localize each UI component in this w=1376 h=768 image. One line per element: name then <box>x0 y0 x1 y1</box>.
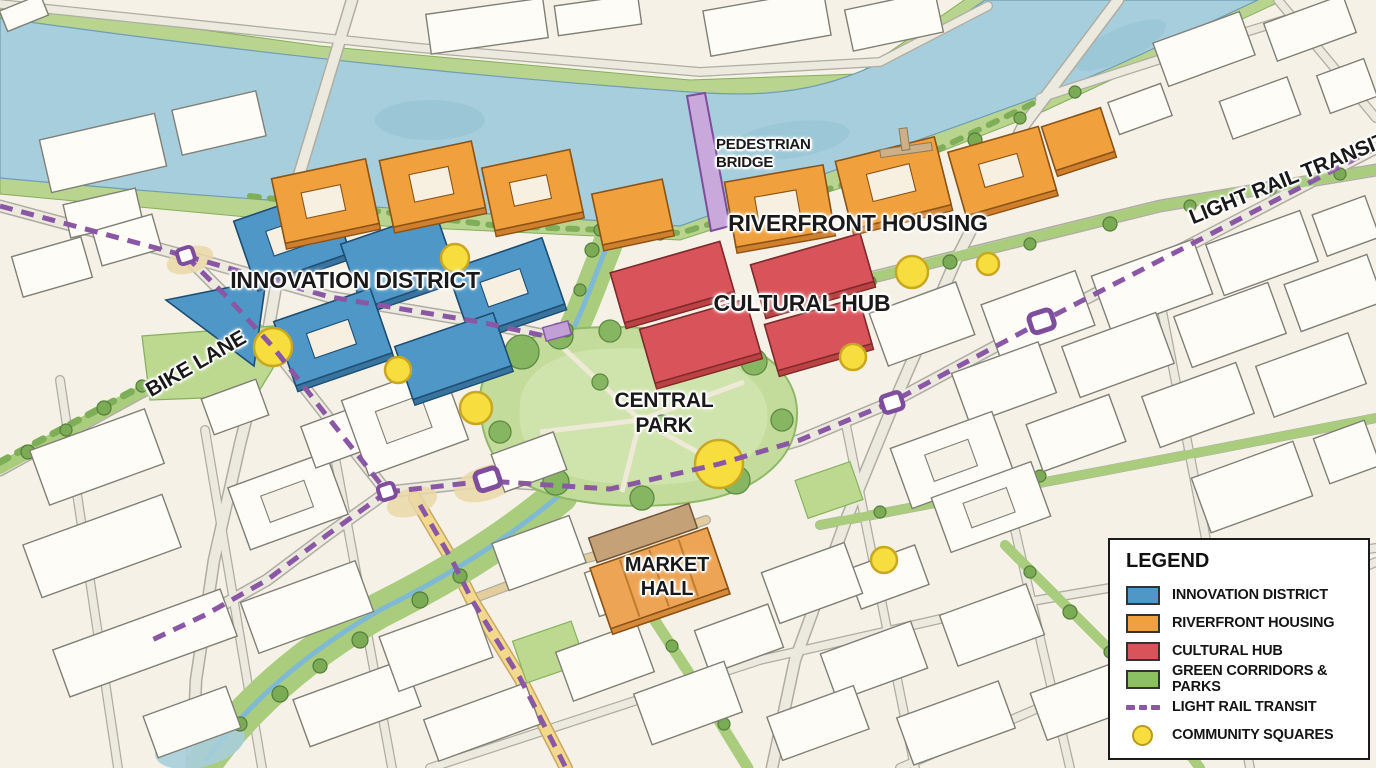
innovation-swatch-icon <box>1126 586 1160 605</box>
rail-station <box>377 482 397 501</box>
community-square <box>896 256 928 288</box>
legend: LEGEND INNOVATION DISTRICT RIVERFRONT HO… <box>1108 538 1370 760</box>
legend-item-riverfront: RIVERFRONT HOUSING <box>1126 609 1354 637</box>
community-square <box>871 547 897 573</box>
community-square <box>840 344 866 370</box>
community-square <box>385 357 411 383</box>
cultural-swatch-icon <box>1126 642 1160 661</box>
legend-item-innovation: INNOVATION DISTRICT <box>1126 581 1354 609</box>
rail-station <box>176 246 196 265</box>
legend-item-community-squares: COMMUNITY SQUARES <box>1126 721 1354 749</box>
masterplan-map: PEDESTRIAN BRIDGE RIVERFRONT HOUSING INN… <box>0 0 1376 768</box>
community-square <box>977 253 999 275</box>
legend-item-green-corridors: GREEN CORRIDORS & PARKS <box>1126 665 1354 693</box>
rail-station <box>1028 309 1056 334</box>
green-swatch-icon <box>1126 670 1160 689</box>
legend-item-cultural: CULTURAL HUB <box>1126 637 1354 665</box>
legend-item-light-rail: LIGHT RAIL TRANSIT <box>1126 693 1354 721</box>
community-square <box>460 392 492 424</box>
legend-title: LEGEND <box>1126 550 1354 573</box>
riverfront-swatch-icon <box>1126 614 1160 633</box>
rail-station <box>880 391 904 413</box>
rail-station <box>474 467 502 492</box>
rail-dashes-icon <box>1126 705 1160 710</box>
community-square <box>441 244 469 272</box>
community-circle-icon <box>1132 725 1153 746</box>
